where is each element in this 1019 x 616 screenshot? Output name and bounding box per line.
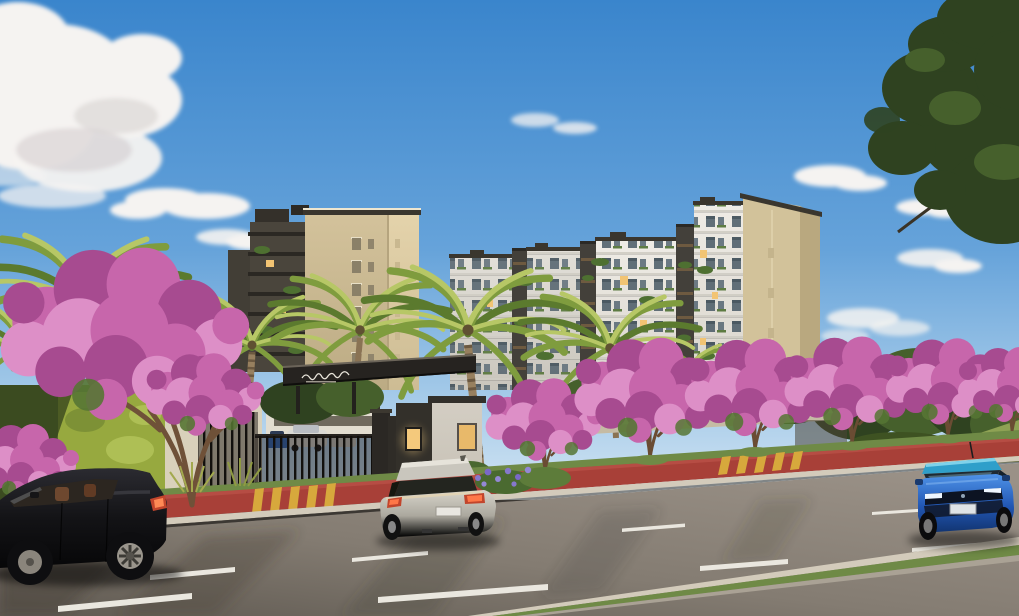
render-scene (0, 0, 1019, 616)
canopy-post (352, 382, 356, 414)
booth-window-lit (458, 424, 476, 450)
rooftop-box (255, 209, 289, 223)
car-interior-seats (55, 487, 69, 501)
brand-sub-line (306, 381, 336, 383)
guard-window-lit (406, 428, 421, 450)
canopy-post (296, 386, 300, 414)
license-plate (436, 507, 461, 516)
side-mirror (30, 492, 39, 498)
headlight-left (925, 493, 942, 499)
side-mirror (1002, 475, 1010, 481)
side-mirror (915, 479, 923, 485)
license-plate (950, 504, 976, 514)
car-black-hatchback (0, 468, 183, 586)
condominium-street-render (0, 0, 1019, 616)
